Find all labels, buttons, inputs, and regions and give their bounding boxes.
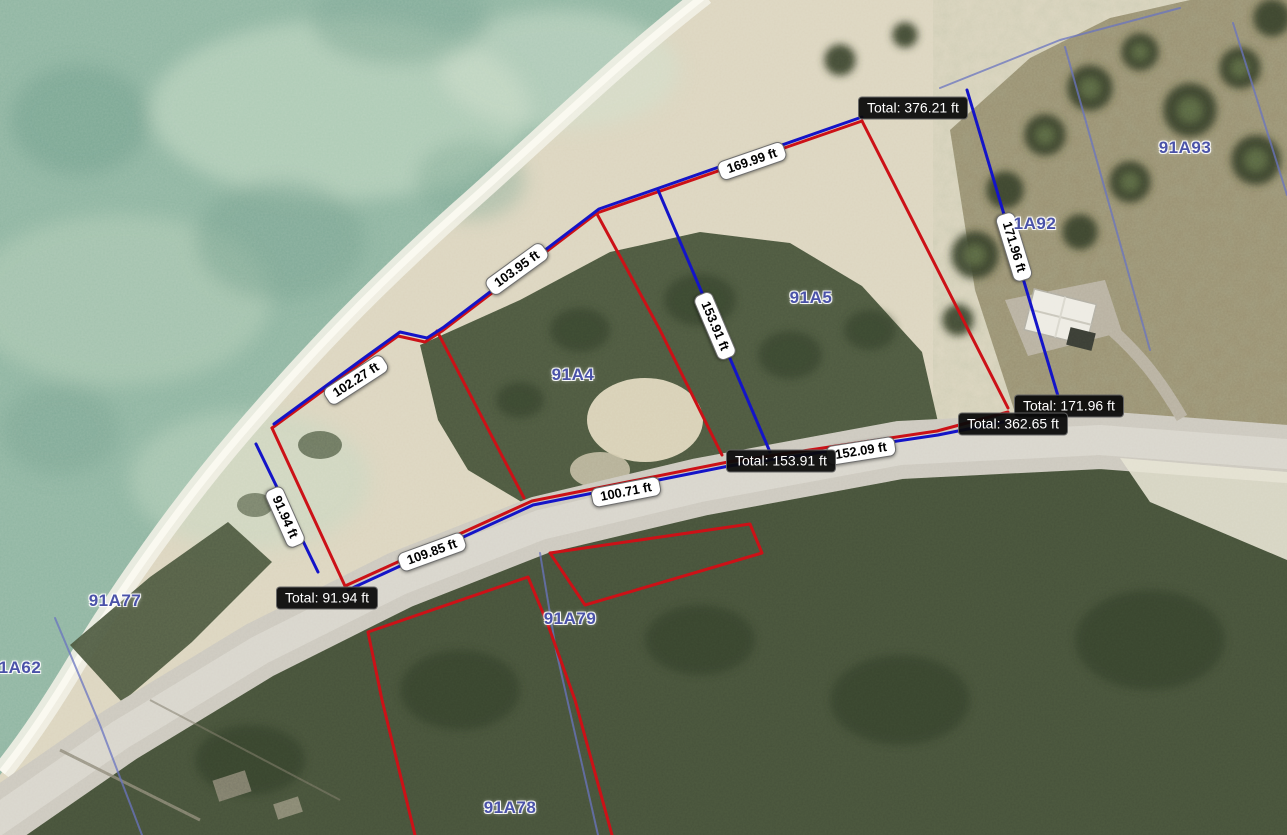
map-canvas[interactable]: 169.99 ft103.95 ft102.27 ft153.91 ft171.…	[0, 0, 1287, 835]
aerial-imagery	[0, 0, 1287, 835]
